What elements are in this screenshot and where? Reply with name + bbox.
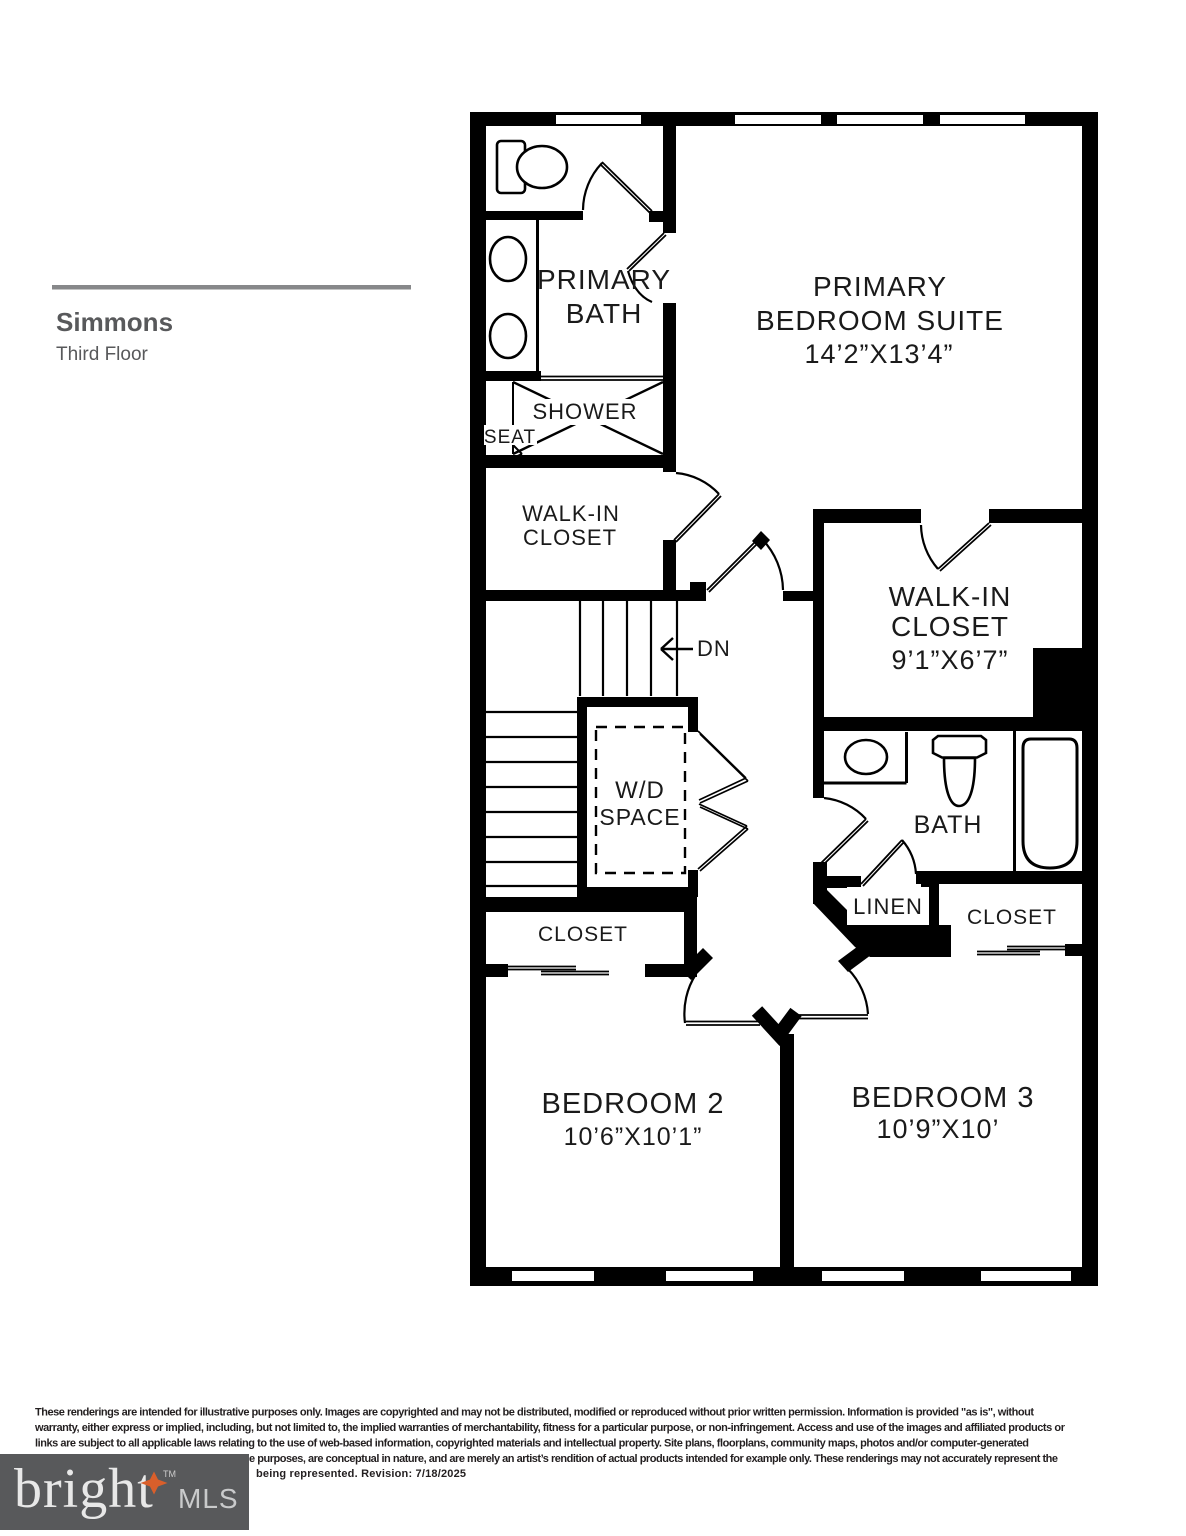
svg-text:SEAT: SEAT <box>484 427 536 448</box>
svg-text:SHOWER: SHOWER <box>533 399 638 424</box>
svg-text:SPACE: SPACE <box>599 804 680 830</box>
svg-text:10’6”X10’1”: 10’6”X10’1” <box>564 1123 703 1151</box>
svg-text:CLOSET: CLOSET <box>891 611 1009 642</box>
svg-text:PRIMARY: PRIMARY <box>537 264 671 295</box>
svg-text:BATH: BATH <box>914 811 983 839</box>
svg-text:Third Floor: Third Floor <box>56 344 149 365</box>
svg-text:BATH: BATH <box>566 298 643 329</box>
svg-text:CLOSET: CLOSET <box>538 923 628 946</box>
svg-text:Simmons: Simmons <box>56 307 173 337</box>
svg-text:WALK-IN: WALK-IN <box>889 581 1012 612</box>
svg-text:MLS: MLS <box>178 1483 239 1514</box>
svg-text:CLOSET: CLOSET <box>967 906 1057 929</box>
svg-text:PRIMARY: PRIMARY <box>813 271 947 302</box>
svg-text:TM: TM <box>163 1469 176 1479</box>
svg-text:9’1”X6’7”: 9’1”X6’7” <box>891 645 1008 675</box>
svg-text:These renderings are intended: These renderings are intended for illust… <box>35 1407 1034 1419</box>
svg-text:LINEN: LINEN <box>853 894 923 919</box>
svg-text:links are subject to all appli: links are subject to all applicable laws… <box>35 1438 1029 1450</box>
svg-text:CLOSET: CLOSET <box>523 525 617 550</box>
svg-text:BEDROOM 2: BEDROOM 2 <box>541 1088 724 1120</box>
svg-text:BEDROOM 3: BEDROOM 3 <box>851 1082 1034 1114</box>
svg-text:bright: bright <box>14 1458 154 1520</box>
svg-text:BEDROOM SUITE: BEDROOM SUITE <box>756 305 1004 336</box>
svg-text:WALK-IN: WALK-IN <box>522 501 620 526</box>
svg-text:14’2”X13’4”: 14’2”X13’4” <box>804 339 953 369</box>
svg-text:warranty, either express or im: warranty, either express or implied, inc… <box>34 1422 1066 1434</box>
svg-text:10’9”X10’: 10’9”X10’ <box>876 1114 999 1144</box>
svg-text:e purposes, are conceptual in: e purposes, are conceptual in nature, an… <box>249 1453 1058 1465</box>
svg-text:being represented. Revision: 7: being represented. Revision: 7/18/2025 <box>256 1468 466 1480</box>
svg-text:DN: DN <box>697 636 731 661</box>
svg-text:W/D: W/D <box>615 777 665 804</box>
